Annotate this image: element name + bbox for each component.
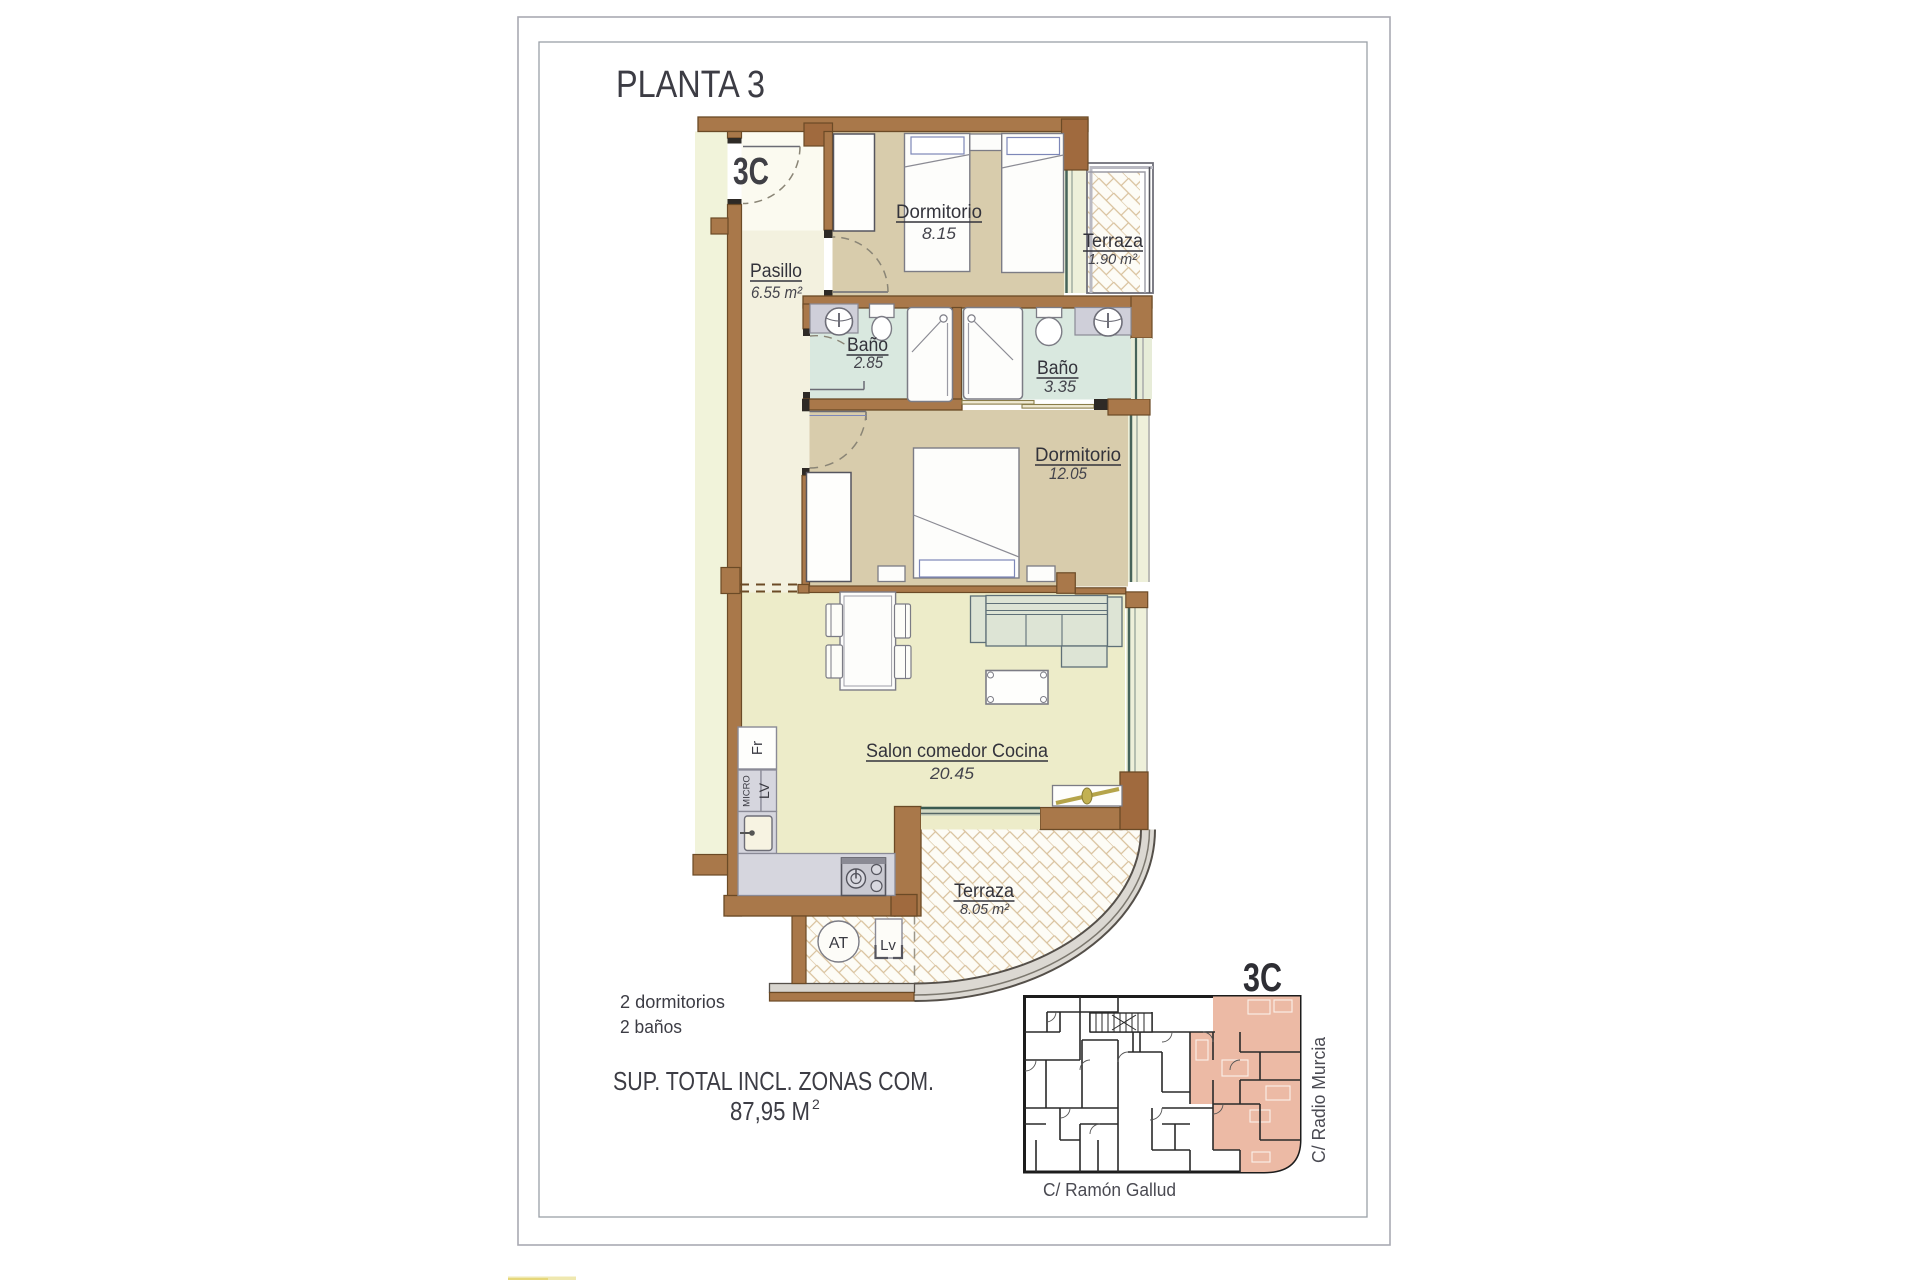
svg-text:Pasillo: Pasillo bbox=[750, 261, 802, 282]
svg-text:2: 2 bbox=[812, 1096, 820, 1112]
svg-text:8.15: 8.15 bbox=[922, 224, 957, 243]
svg-text:Terraza: Terraza bbox=[954, 881, 1014, 902]
svg-text:3C: 3C bbox=[733, 151, 769, 193]
svg-text:Terraza: Terraza bbox=[1083, 231, 1143, 252]
svg-text:12.05: 12.05 bbox=[1049, 464, 1087, 483]
svg-text:87,95 M: 87,95 M bbox=[730, 1096, 810, 1126]
svg-text:20.45: 20.45 bbox=[929, 764, 975, 783]
svg-text:2 dormitorios: 2 dormitorios bbox=[620, 992, 725, 1012]
svg-text:SUP. TOTAL INCL. ZONAS COM.: SUP. TOTAL INCL. ZONAS COM. bbox=[613, 1066, 934, 1096]
svg-text:6.55 m²: 6.55 m² bbox=[751, 283, 803, 302]
svg-text:Fr: Fr bbox=[749, 741, 766, 755]
svg-text:AT: AT bbox=[829, 935, 848, 952]
svg-text:Salon comedor Cocina: Salon comedor Cocina bbox=[866, 741, 1048, 762]
svg-text:Dormitorio: Dormitorio bbox=[1035, 445, 1121, 466]
svg-text:Baño: Baño bbox=[1037, 358, 1078, 379]
svg-text:2 baños: 2 baños bbox=[620, 1017, 682, 1037]
svg-text:C/ Radio Murcia: C/ Radio Murcia bbox=[1309, 1036, 1329, 1163]
svg-text:MICRO: MICRO bbox=[742, 775, 753, 807]
svg-text:PLANTA 3: PLANTA 3 bbox=[616, 64, 765, 106]
svg-text:8.05 m²: 8.05 m² bbox=[960, 901, 1010, 918]
svg-text:3C: 3C bbox=[1243, 956, 1282, 1000]
svg-text:Dormitorio: Dormitorio bbox=[896, 202, 982, 223]
svg-text:1.90 m²: 1.90 m² bbox=[1088, 251, 1138, 268]
svg-text:3.35: 3.35 bbox=[1044, 377, 1077, 396]
svg-text:C/ Ramón Gallud: C/ Ramón Gallud bbox=[1043, 1180, 1176, 1200]
svg-text:2.85: 2.85 bbox=[853, 353, 883, 372]
svg-text:LV: LV bbox=[756, 782, 772, 799]
svg-text:Lv: Lv bbox=[880, 937, 896, 954]
